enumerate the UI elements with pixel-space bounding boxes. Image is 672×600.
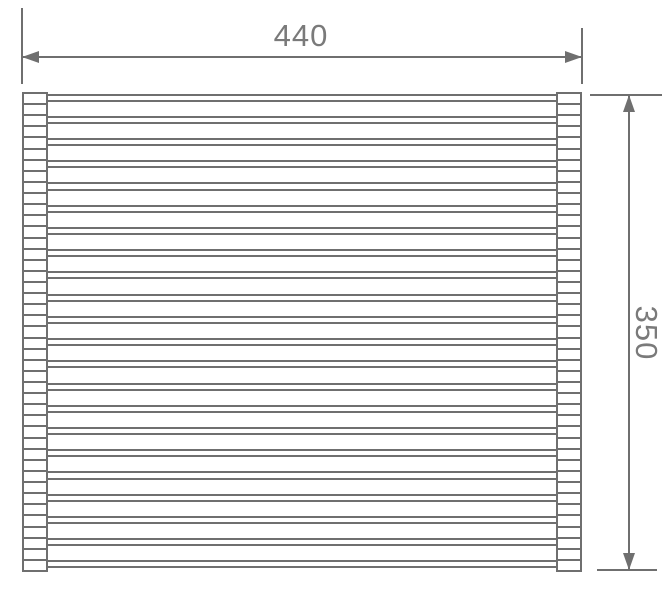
rod <box>46 138 558 146</box>
rod <box>46 494 558 502</box>
rod <box>46 316 558 324</box>
rod <box>46 116 558 124</box>
rod <box>46 94 558 102</box>
height-dimension-label: 350 <box>630 273 662 393</box>
rod <box>46 227 558 235</box>
rod <box>46 405 558 413</box>
end-cap <box>22 559 48 572</box>
width-extension-line-left <box>21 8 23 84</box>
rod <box>46 271 558 279</box>
arrow-up-icon <box>623 95 635 112</box>
rod <box>46 383 558 391</box>
rod <box>46 449 558 457</box>
end-cap <box>556 559 582 572</box>
rod <box>46 249 558 257</box>
drawing-canvas: 440 350 <box>0 0 672 600</box>
rod <box>46 516 558 524</box>
rod <box>46 160 558 168</box>
width-dimension-line <box>22 56 582 58</box>
rod <box>46 360 558 368</box>
rod <box>46 294 558 302</box>
rod <box>46 538 558 546</box>
rod <box>46 205 558 213</box>
width-dimension-label: 440 <box>241 20 361 52</box>
arrow-down-icon <box>623 553 635 570</box>
rod <box>46 471 558 479</box>
rod <box>46 427 558 435</box>
rod <box>46 338 558 346</box>
arrow-right-icon <box>565 51 582 63</box>
rod <box>46 182 558 190</box>
rod <box>46 560 558 568</box>
arrow-left-icon <box>22 51 39 63</box>
